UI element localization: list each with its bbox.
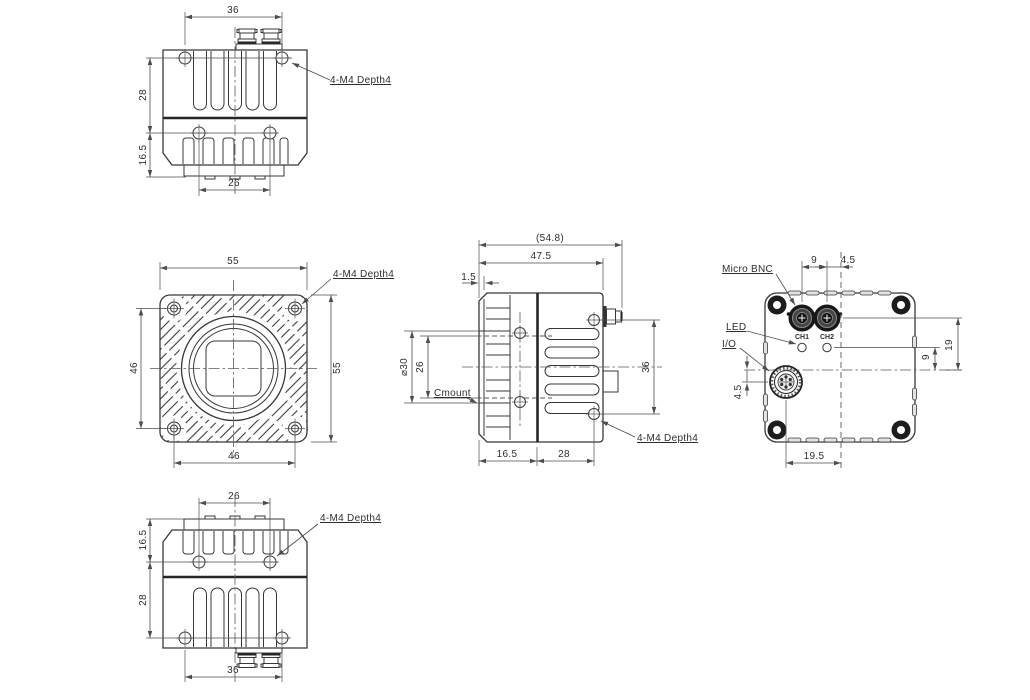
top-dim-26: 26 <box>228 178 240 189</box>
bnc-connector-bottom-icon <box>236 648 282 668</box>
side-leader-line <box>601 421 635 437</box>
bottom-view: 26 16.5 28 36 4-M4 Depth4 <box>138 491 381 682</box>
bnc-ch1-connector <box>787 305 818 332</box>
side-io-stub <box>603 371 618 392</box>
side-dim-mount-opening: 26 <box>415 361 426 373</box>
front-view: 55 55 46 46 4-M4 Depth4 <box>129 256 394 468</box>
top-dim-36: 36 <box>227 5 239 16</box>
side-front-fin-lines <box>486 308 510 427</box>
back-dim-led-height: 9 <box>921 354 932 360</box>
side-body-outline <box>479 293 603 442</box>
side-rear-slots <box>545 329 599 414</box>
side-dim-hole-spacing: 36 <box>641 361 652 373</box>
top-thread-label: 4-M4 Depth4 <box>330 75 391 86</box>
led-ch1 <box>798 343 806 351</box>
back-dim-io-v: 4.5 <box>733 384 744 399</box>
ch2-label: CH2 <box>820 334 834 341</box>
led-leader-line <box>747 331 796 344</box>
side-dim-mount-dia: ⌀30 <box>399 358 410 376</box>
back-dim-bnc-spacing: 9 <box>811 255 817 266</box>
drawing-canvas: 36 28 16.5 26 4-M4 Depth4 <box>0 0 1030 700</box>
top-leader-line <box>292 63 330 80</box>
top-dim-28: 28 <box>138 89 149 101</box>
top-view: 36 28 16.5 26 4-M4 Depth4 <box>138 5 391 196</box>
side-dim-rear: 28 <box>558 449 570 460</box>
front-dim-hole-v: 46 <box>129 362 140 374</box>
front-dim-height: 55 <box>332 362 343 374</box>
side-dim-body: 47.5 <box>531 251 552 262</box>
bottom-dim-26: 26 <box>228 491 240 502</box>
bottom-leader-line <box>277 524 318 556</box>
back-dim-bnc-height: 19 <box>944 339 955 351</box>
camera-dimension-drawing: 36 28 16.5 26 4-M4 Depth4 <box>0 0 1030 700</box>
bottom-thread-label: 4-M4 Depth4 <box>320 513 381 524</box>
front-dim-hole-h: 46 <box>228 451 240 462</box>
micro-bnc-label: Micro BNC <box>722 264 773 275</box>
back-dim-bnc-offset: 4.5 <box>841 255 856 266</box>
front-dim-width: 55 <box>227 256 239 267</box>
top-dim-16-5: 16.5 <box>138 145 149 166</box>
bottom-dim-36: 36 <box>227 665 239 676</box>
bnc-connector-top-icon <box>236 29 282 50</box>
front-thread-label: 4-M4 Depth4 <box>333 269 394 280</box>
bottom-dim-16-5: 16.5 <box>138 530 149 551</box>
side-dim-overall: (54.8) <box>536 233 564 244</box>
side-view: (54.8) 47.5 1.5 ⌀30 26 Cmount 36 16.5 28… <box>399 233 698 466</box>
bottom-dim-28: 28 <box>138 594 149 606</box>
front-leader-line <box>302 279 331 304</box>
side-thread-label: 4-M4 Depth4 <box>637 433 698 444</box>
side-dim-front: 16.5 <box>497 449 518 460</box>
side-dim-flange: 1.5 <box>461 272 476 283</box>
bnc-ch2-connector <box>814 305 843 332</box>
led-ch2 <box>823 343 831 351</box>
back-dim-io-h: 19.5 <box>804 451 825 462</box>
ch1-label: CH1 <box>795 334 809 341</box>
io-label: I/O <box>722 339 736 350</box>
io-connector <box>770 366 802 398</box>
led-label: LED <box>726 322 746 333</box>
cmount-label: Cmount <box>434 388 471 399</box>
bnc-connector-side-icon <box>603 306 622 327</box>
back-view: CH1 CH2 9 4.5 19 9 <box>722 252 962 470</box>
